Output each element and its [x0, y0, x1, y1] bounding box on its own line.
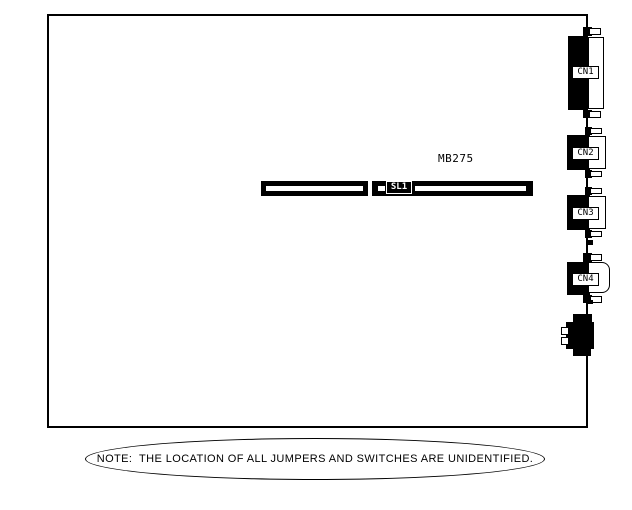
board-model-label: MB275: [438, 153, 474, 165]
connector-body: [566, 322, 594, 349]
slot-opening: [266, 186, 363, 191]
slot-key-notch: [378, 186, 385, 191]
mount-tab: [590, 128, 602, 134]
connector-label-cn1: CN1: [572, 66, 599, 79]
board-outline: [47, 14, 588, 428]
edge-nub: [587, 240, 593, 245]
mount-hole: [561, 337, 569, 345]
mount-tab: [589, 28, 601, 35]
edge-nub: [587, 300, 593, 304]
note-text: NOTE: THE LOCATION OF ALL JUMPERS AND SW…: [97, 453, 534, 465]
slot-label-sl1: SL1: [386, 181, 412, 194]
mount-tab: [590, 188, 602, 194]
connector-label-cn4: CN4: [572, 273, 599, 286]
connector-label-cn3: CN3: [572, 207, 599, 220]
mount-tab: [589, 111, 601, 118]
mount-tab: [590, 171, 602, 177]
slot-opening: [415, 186, 526, 191]
board-diagram: MB275 SL1 CN1 CN2 CN3: [0, 0, 632, 510]
expansion-slot-left-segment: [261, 181, 368, 196]
connector-body: [573, 348, 591, 356]
mount-tab: [590, 254, 602, 261]
connector-label-cn2: CN2: [572, 147, 599, 160]
mount-hole: [561, 327, 569, 335]
note-callout: NOTE: THE LOCATION OF ALL JUMPERS AND SW…: [85, 438, 545, 480]
expansion-slot-sl1: SL1: [372, 181, 533, 196]
mount-tab: [590, 231, 602, 237]
